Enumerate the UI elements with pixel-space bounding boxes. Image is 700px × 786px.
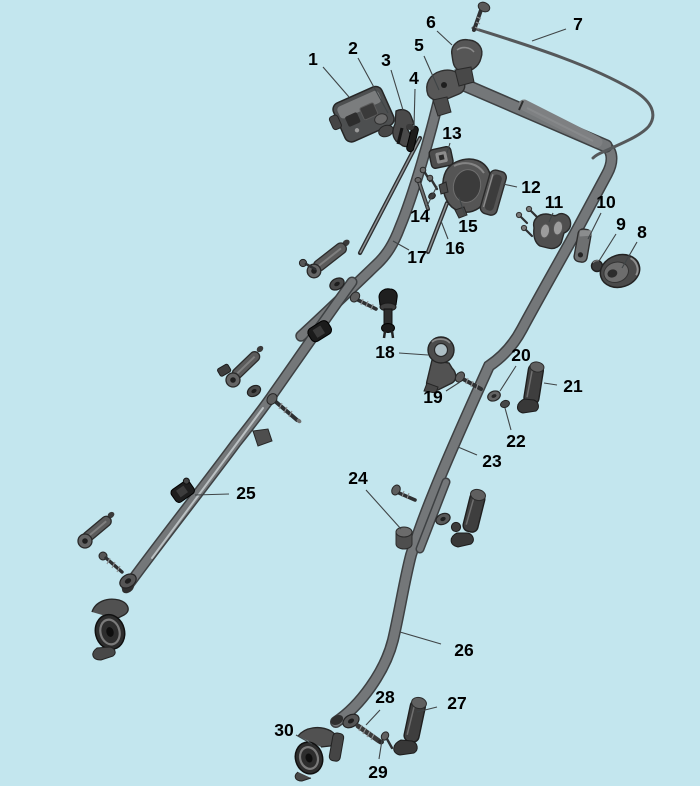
part-lever-27 bbox=[394, 696, 428, 755]
part-number-label-18: 18 bbox=[375, 342, 395, 362]
part-number-label-8: 8 bbox=[637, 222, 647, 242]
part-end-cap-24 bbox=[396, 527, 412, 549]
part-hinge-bracket-30 bbox=[292, 728, 345, 781]
part-number-label-9: 9 bbox=[616, 214, 626, 234]
part-clamp-11 bbox=[516, 206, 570, 248]
part-eyelet-bracket-18 bbox=[424, 337, 456, 393]
part-washer-22 bbox=[499, 399, 510, 409]
part-lever-21 bbox=[517, 361, 544, 413]
part-number-label-4: 4 bbox=[409, 68, 419, 88]
hardware-cluster-a bbox=[299, 238, 351, 292]
hardware-cluster-d bbox=[78, 511, 139, 591]
grip-bar bbox=[453, 80, 606, 146]
cable-bolt bbox=[474, 0, 491, 30]
part-number-label-20: 20 bbox=[511, 345, 531, 365]
parts-diagram: 1234567891011121314151617181920212223242… bbox=[0, 0, 700, 786]
leader-line-3 bbox=[391, 70, 403, 110]
part-number-label-19: 19 bbox=[423, 387, 443, 407]
part-number-label-30: 30 bbox=[274, 720, 294, 740]
leader-line-24 bbox=[366, 490, 401, 529]
part-number-label-1: 1 bbox=[308, 49, 318, 69]
part-number-label-28: 28 bbox=[375, 687, 395, 707]
leader-line-18 bbox=[399, 353, 428, 355]
leader-line-16 bbox=[441, 221, 448, 239]
part-number-label-10: 10 bbox=[596, 192, 616, 212]
part-hinge-bracket-left bbox=[92, 599, 129, 660]
part-number-label-3: 3 bbox=[381, 50, 391, 70]
part-number-label-5: 5 bbox=[414, 35, 424, 55]
leader-line-26 bbox=[400, 632, 441, 644]
part-wedge bbox=[253, 429, 272, 446]
part-number-label-16: 16 bbox=[445, 238, 465, 258]
part-spring-28 bbox=[358, 725, 384, 744]
part-knob-cap-8 bbox=[596, 250, 644, 293]
part-short-rod-16 bbox=[428, 203, 447, 252]
part-number-label-17: 17 bbox=[407, 247, 426, 267]
leader-line-12 bbox=[503, 184, 517, 187]
leader-line-1 bbox=[323, 67, 349, 97]
part-number-label-29: 29 bbox=[368, 762, 388, 782]
part-t-knob bbox=[379, 289, 397, 338]
diagram-canvas: 1234567891011121314151617181920212223242… bbox=[0, 0, 700, 786]
part-number-label-25: 25 bbox=[236, 483, 256, 503]
part-number-label-7: 7 bbox=[573, 14, 583, 34]
leader-line-20 bbox=[500, 366, 516, 391]
part-number-label-24: 24 bbox=[348, 468, 368, 488]
part-number-label-11: 11 bbox=[545, 192, 564, 212]
leader-line-7 bbox=[532, 29, 566, 41]
hardware-cluster-b bbox=[217, 345, 265, 399]
leader-line-28 bbox=[366, 710, 380, 725]
part-number-label-21: 21 bbox=[563, 376, 583, 396]
part-number-label-6: 6 bbox=[426, 12, 436, 32]
part-number-label-12: 12 bbox=[521, 177, 541, 197]
part-number-label-14: 14 bbox=[410, 206, 430, 226]
leader-line-21 bbox=[544, 383, 557, 385]
part-number-label-2: 2 bbox=[348, 38, 358, 58]
leader-line-4 bbox=[414, 89, 415, 127]
leader-line-6 bbox=[437, 31, 452, 45]
part-bolt-left bbox=[265, 392, 302, 425]
part-number-label-22: 22 bbox=[506, 431, 526, 451]
part-number-label-15: 15 bbox=[458, 216, 478, 236]
leader-line-23 bbox=[458, 447, 477, 455]
part-number-label-23: 23 bbox=[482, 451, 502, 471]
part-screw-mid bbox=[348, 290, 376, 310]
part-washer-20 bbox=[486, 389, 502, 403]
part-number-label-26: 26 bbox=[454, 640, 474, 660]
part-number-label-27: 27 bbox=[447, 693, 466, 713]
leader-line-22 bbox=[505, 408, 511, 430]
part-number-label-13: 13 bbox=[442, 123, 462, 143]
part-bolt-24 bbox=[390, 484, 415, 500]
